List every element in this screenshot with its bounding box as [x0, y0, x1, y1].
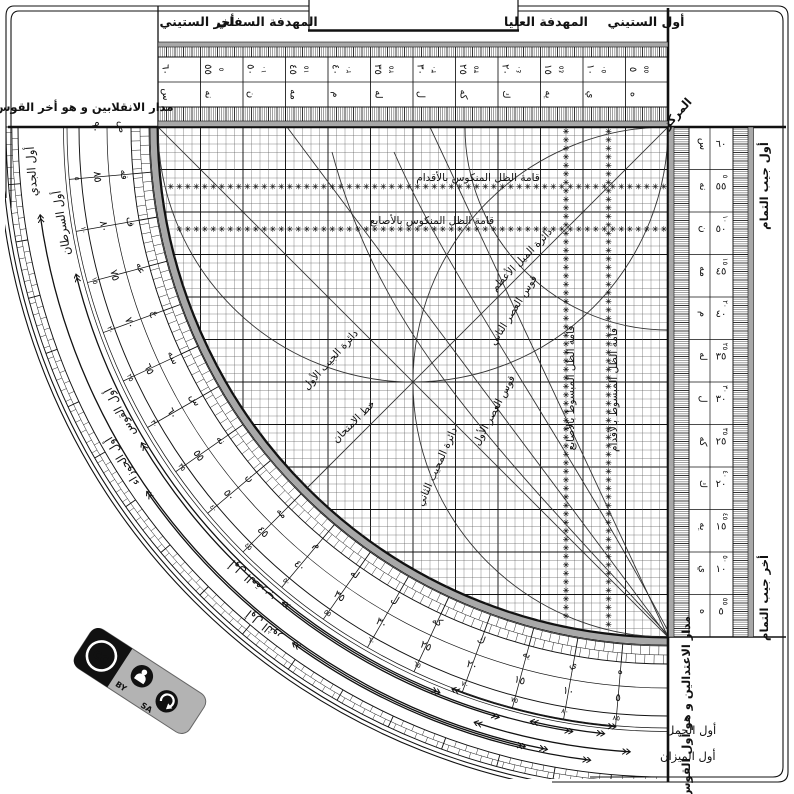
rule-line: [143, 181, 152, 182]
star-mark: [516, 184, 522, 190]
top-scale-complement: ٣٥: [473, 66, 481, 74]
rule-line: [484, 615, 490, 632]
right-scale-number: ٤٥: [716, 267, 727, 278]
rule-line: [570, 646, 572, 655]
star-mark: [176, 184, 182, 190]
rule-line: [505, 621, 508, 630]
rule-line: [470, 608, 473, 616]
rule-line: [178, 321, 186, 324]
rule-line: [442, 738, 446, 749]
rule-line: [83, 422, 88, 425]
star-mark: [606, 511, 612, 517]
rule-line: [284, 661, 287, 666]
rule-line: [343, 536, 349, 543]
rule-line: [613, 643, 614, 652]
rule-line: [133, 168, 142, 169]
star-mark: [606, 562, 612, 568]
rule-line: [210, 403, 218, 408]
rule-line: [30, 302, 36, 304]
rule-line: [400, 576, 409, 592]
top-scale-number: ٤٠: [330, 64, 341, 75]
rule-line: [428, 600, 432, 608]
right-scale-complement: ٤٥: [721, 513, 729, 521]
rule-line: [95, 452, 105, 458]
rule-line: [257, 461, 271, 473]
star-mark: [567, 226, 573, 232]
rule-line: [118, 481, 123, 484]
tab-mihdafa-sufla: المهدفة السفلي: [216, 14, 317, 29]
rule-line: [163, 305, 180, 311]
rule-line: [543, 765, 544, 771]
rule-line: [282, 481, 289, 487]
rule-line: [358, 547, 363, 554]
star-mark: [606, 162, 612, 168]
right-scale-complement: ٢٠: [721, 300, 729, 308]
arc-degree-letter: له: [348, 568, 361, 582]
star-mark: [563, 553, 569, 559]
rule-line: [534, 638, 536, 647]
right-scale-letter: ك: [697, 480, 708, 488]
star-mark: [606, 604, 612, 610]
star-mark: [287, 184, 293, 190]
rule-line: [487, 752, 489, 758]
rule-line: [255, 632, 259, 637]
rule-line: [46, 349, 57, 353]
arc-degree-letter: نه: [213, 434, 227, 447]
rule-line: [248, 456, 255, 462]
rule-line: [415, 733, 417, 739]
star-mark: [606, 205, 612, 211]
rule-line: [151, 527, 156, 531]
top-scale-letter: نه: [203, 90, 214, 98]
star-mark: [635, 226, 641, 232]
star-mark: [606, 502, 612, 508]
rule-line: [24, 280, 30, 281]
rule-line: [183, 354, 191, 358]
star-mark: [244, 184, 250, 190]
rule-line: [12, 213, 18, 214]
star-mark: [508, 184, 514, 190]
star-mark: [559, 184, 565, 190]
rule-line: [437, 593, 441, 601]
rule-line: [278, 490, 285, 496]
rule-line: [360, 552, 370, 567]
arc-degree-complement: ٧٠: [460, 680, 470, 690]
rule-line: [412, 725, 414, 731]
star-mark: [563, 502, 569, 508]
rule-line: [147, 208, 156, 209]
star-mark: [499, 184, 505, 190]
top-scale-letter: ل: [415, 91, 426, 98]
star-mark: [563, 213, 569, 219]
rule-line: [140, 223, 149, 225]
rule-line: [285, 497, 291, 503]
rule-line: [380, 562, 385, 570]
label-akhir-jayb-tamam: أخر جيب التمام: [756, 555, 771, 641]
rule-line: [342, 698, 345, 703]
rule-line: [604, 642, 605, 651]
rule-line: [141, 163, 150, 164]
top-scale-number: ٥٥: [202, 64, 213, 75]
star-mark: [474, 184, 480, 190]
rule-line: [78, 412, 83, 415]
rule-line: [631, 645, 632, 654]
star-mark: [606, 545, 612, 551]
rule-line: [308, 507, 314, 514]
top-scale-number: ٣٥: [372, 64, 383, 75]
top-scale-complement: ٥: [218, 67, 226, 71]
rule-line: [133, 178, 142, 179]
rule-line: [161, 545, 170, 553]
rule-line: [588, 772, 589, 778]
arc-degree-letter: يه: [521, 649, 532, 662]
star-mark: [355, 184, 361, 190]
rule-line: [393, 724, 395, 729]
right-scale-complement: ٤٠: [721, 470, 729, 478]
rule-line: [172, 329, 180, 332]
star-mark: [606, 256, 612, 262]
rule-line: [231, 434, 238, 439]
arc-degree-complement: ٣٠: [149, 418, 160, 429]
rule-line: [26, 262, 32, 263]
rule-line: [158, 536, 163, 540]
star-mark: [312, 226, 318, 232]
star-mark: [329, 184, 335, 190]
rule-line: [334, 540, 340, 547]
gray-band: [669, 127, 675, 637]
star-mark: [567, 184, 573, 190]
rule-line: [134, 187, 143, 188]
tab-awwal-sittini: أول الستيني: [608, 13, 685, 29]
star-mark: [563, 570, 569, 576]
rule-line: [558, 635, 560, 644]
arc-degree-complement: ٣٥: [176, 462, 187, 473]
rule-line: [129, 508, 134, 511]
star-mark: [618, 184, 624, 190]
right-scale-number: ٣٠: [716, 394, 727, 405]
rule-line: [40, 335, 46, 337]
rule-line: [31, 284, 37, 285]
star-mark: [491, 184, 497, 190]
rule-line: [559, 774, 560, 780]
rule-line: [98, 460, 103, 463]
rule-line: [246, 439, 253, 444]
rule-line: [136, 517, 141, 521]
rule-line: [144, 241, 153, 243]
arc-degree-number: ٣٥: [331, 588, 347, 604]
rule-line: [44, 328, 50, 330]
star-mark: [606, 519, 612, 525]
star-mark: [606, 596, 612, 602]
rule-line: [522, 626, 524, 635]
rule-line: [322, 519, 328, 526]
top-scale-letter: م: [330, 91, 341, 97]
arc-degree-number: ٨٠: [97, 220, 111, 233]
rule-line: [175, 313, 183, 316]
star-mark: [563, 519, 569, 525]
rule-line: [589, 649, 590, 658]
rule-line: [162, 303, 170, 306]
rule-line: [89, 432, 94, 435]
star-mark: [563, 298, 569, 304]
rule-line: [312, 522, 318, 529]
star-mark: [606, 128, 612, 134]
star-mark: [448, 184, 454, 190]
rule-line: [617, 653, 618, 662]
rule-line: [565, 769, 566, 775]
rule-line: [142, 232, 151, 234]
rule-line: [15, 235, 21, 236]
rule-line: [425, 737, 427, 743]
rule-line: [94, 442, 99, 445]
star-mark: [295, 226, 301, 232]
right-scale-letter: ل: [697, 395, 708, 402]
rule-line: [192, 371, 200, 375]
star-mark: [355, 226, 361, 232]
rule-line: [383, 719, 386, 724]
zodiac-label: أول العقرب: [226, 556, 278, 606]
arc-degree-number: ٥٥: [190, 448, 206, 464]
star-mark: [185, 226, 191, 232]
star-mark: [606, 247, 612, 253]
rule-line: [16, 195, 22, 196]
arc-degree-number: ١٥: [513, 673, 527, 688]
rule-line: [288, 659, 295, 669]
star-mark: [606, 315, 612, 321]
star-mark: [563, 485, 569, 491]
rule-line: [187, 363, 195, 367]
star-mark: [606, 460, 612, 466]
star-mark: [563, 596, 569, 602]
rule-line: [193, 355, 201, 359]
star-mark: [482, 184, 488, 190]
rule-line: [146, 250, 155, 252]
star-mark: [270, 184, 276, 190]
arc-degree-complement: ٥٥: [322, 608, 333, 619]
top-scale-number: ١٠: [585, 64, 596, 75]
star-mark: [563, 171, 569, 177]
rule-line: [124, 490, 129, 493]
arc-degree-number: ٤٠: [292, 558, 308, 574]
right-scale-number: ١٥: [716, 522, 727, 533]
rule-line: [552, 642, 554, 651]
star-mark: [606, 171, 612, 177]
rule-line: [543, 640, 545, 649]
star-mark: [563, 536, 569, 542]
rule-line: [540, 631, 542, 640]
top-scale-complement: ٥٠: [600, 66, 608, 74]
star-mark: [563, 528, 569, 534]
label-mabsut-asabi: قامة الظل المبسوط بالأصابع: [564, 326, 577, 451]
rule-line: [524, 636, 526, 645]
star-mark: [227, 184, 233, 190]
rule-line: [180, 570, 184, 574]
zodiac-label: أول الجدي: [22, 146, 41, 197]
rule-line: [599, 773, 600, 779]
star-mark: [652, 226, 658, 232]
rule-line: [364, 562, 369, 569]
rule-line: [276, 474, 283, 480]
star-mark: [261, 184, 267, 190]
top-scale-letter: س: [160, 88, 171, 100]
star-mark: [563, 256, 569, 262]
rule-line: [356, 557, 361, 564]
star-mark: [606, 528, 612, 534]
star-mark: [278, 184, 284, 190]
rule-line: [252, 447, 259, 453]
rule-line: [549, 633, 551, 642]
top-scale-number: ١٥: [542, 64, 553, 75]
plate-svg: ه٥٨٥ي١٠٨٠يه١٥٧٥ك٢٠٧٠كه٢٥٦٥ل٣٠٦٠له٣٥٥٥م٤٠…: [0, 0, 794, 794]
rule-line: [388, 567, 393, 575]
rule-line: [498, 628, 501, 637]
rule-line: [515, 633, 518, 642]
star-mark: [606, 239, 612, 245]
rule-line: [149, 261, 166, 266]
rule-line: [220, 418, 228, 423]
star-mark: [563, 290, 569, 296]
star-mark: [644, 226, 650, 232]
rule-line: [480, 622, 483, 630]
rule-line: [265, 647, 269, 652]
star-mark: [610, 184, 616, 190]
rule-line: [288, 488, 294, 494]
arc-degree-number: ٢٥: [418, 638, 433, 654]
arc-degree-letter: ك: [475, 634, 487, 647]
star-mark: [363, 226, 369, 232]
rule-line: [112, 471, 117, 474]
right-scale-letter: نه: [697, 182, 708, 190]
star-mark: [440, 184, 446, 190]
rule-line: [186, 338, 194, 342]
star-mark: [414, 184, 420, 190]
rule-line: [323, 525, 335, 539]
rule-line: [221, 602, 225, 606]
rule-line: [330, 684, 333, 689]
rule-line: [136, 196, 145, 197]
rule-line: [160, 270, 169, 272]
rule-line: [201, 387, 209, 391]
star-mark: [606, 179, 612, 185]
star-mark: [346, 184, 352, 190]
star-mark: [176, 226, 182, 232]
rule-line: [202, 371, 210, 375]
rule-line: [37, 306, 43, 308]
star-mark: [606, 213, 612, 219]
right-scale-complement: ٣٥: [721, 428, 729, 436]
rule-line: [156, 286, 165, 289]
rule-line: [143, 526, 148, 530]
rule-line: [188, 579, 192, 583]
star-mark: [563, 494, 569, 500]
star-mark: [550, 184, 556, 190]
rule-line: [68, 402, 79, 407]
star-mark: [304, 184, 310, 190]
degree-ring: ه٥٨٥ي١٠٨٠يه١٥٧٥ك٢٠٧٠كه٢٥٦٥ل٣٠٦٠له٣٥٥٥م٤٠…: [0, 121, 668, 794]
rule-line: [19, 258, 25, 259]
star-mark: [563, 579, 569, 585]
rule-line: [332, 692, 335, 697]
top-scale-number: ٥٠: [245, 64, 256, 75]
rule-line: [462, 615, 465, 623]
star-mark: [606, 281, 612, 287]
rule-line: [163, 279, 172, 282]
arc-degree-letter: فه: [118, 169, 130, 180]
star-mark: [227, 226, 233, 232]
rule-line: [61, 389, 67, 391]
star-mark: [499, 226, 505, 232]
star-mark: [593, 184, 599, 190]
star-mark: [606, 273, 612, 279]
rule-line: [106, 462, 111, 465]
rule-line: [137, 509, 142, 513]
zodiac-arrow: [475, 722, 630, 751]
rule-line: [137, 205, 146, 206]
star-mark: [465, 184, 471, 190]
rule-line: [570, 776, 571, 782]
rule-line: [176, 338, 184, 342]
star-mark: [559, 226, 565, 232]
rule-line: [256, 640, 260, 645]
star-mark: [525, 226, 531, 232]
rule-line: [336, 530, 342, 537]
right-scale-complement: ٣٠: [721, 385, 729, 393]
rule-line: [17, 206, 23, 207]
rule-line: [151, 268, 160, 270]
star-mark: [606, 307, 612, 313]
top-scale-complement: ٤٠: [515, 66, 523, 74]
star-mark: [576, 184, 582, 190]
star-mark: [606, 298, 612, 304]
arc-degree-letter: عه: [133, 262, 147, 276]
rule-line: [20, 229, 26, 230]
rule-line: [412, 591, 416, 599]
arc-degree-letter: س: [187, 392, 203, 408]
rule-line: [513, 765, 514, 771]
star-mark: [236, 184, 242, 190]
star-mark: [606, 485, 612, 491]
arc-degree-number: ٣٠: [374, 615, 390, 631]
right-scale-number: ٤٠: [716, 309, 727, 320]
star-mark: [635, 184, 641, 190]
star-mark: [606, 290, 612, 296]
star-mark: [270, 226, 276, 232]
star-mark: [563, 562, 569, 568]
rule-line: [536, 770, 537, 776]
star-mark: [606, 264, 612, 270]
rule-line: [242, 448, 249, 453]
rule-line: [561, 644, 563, 653]
rule-line: [471, 618, 474, 626]
rule-line: [525, 767, 526, 773]
rule-line: [301, 500, 307, 506]
rule-line: [132, 159, 141, 160]
top-scale-number: ٢٠: [500, 64, 511, 75]
star-mark: [563, 128, 569, 134]
rule-line: [605, 780, 606, 786]
rule-line: [188, 570, 192, 574]
rule-line: [27, 291, 33, 293]
rule-line: [9, 190, 15, 191]
rule-line: [148, 259, 157, 261]
star-mark: [563, 273, 569, 279]
gray-band: [158, 42, 668, 47]
zodiac-label: أول السرطان: [49, 190, 75, 257]
rule-line: [254, 463, 261, 469]
star-mark: [606, 587, 612, 593]
right-scale-number: ٥٠: [716, 224, 727, 235]
star-mark: [627, 226, 633, 232]
